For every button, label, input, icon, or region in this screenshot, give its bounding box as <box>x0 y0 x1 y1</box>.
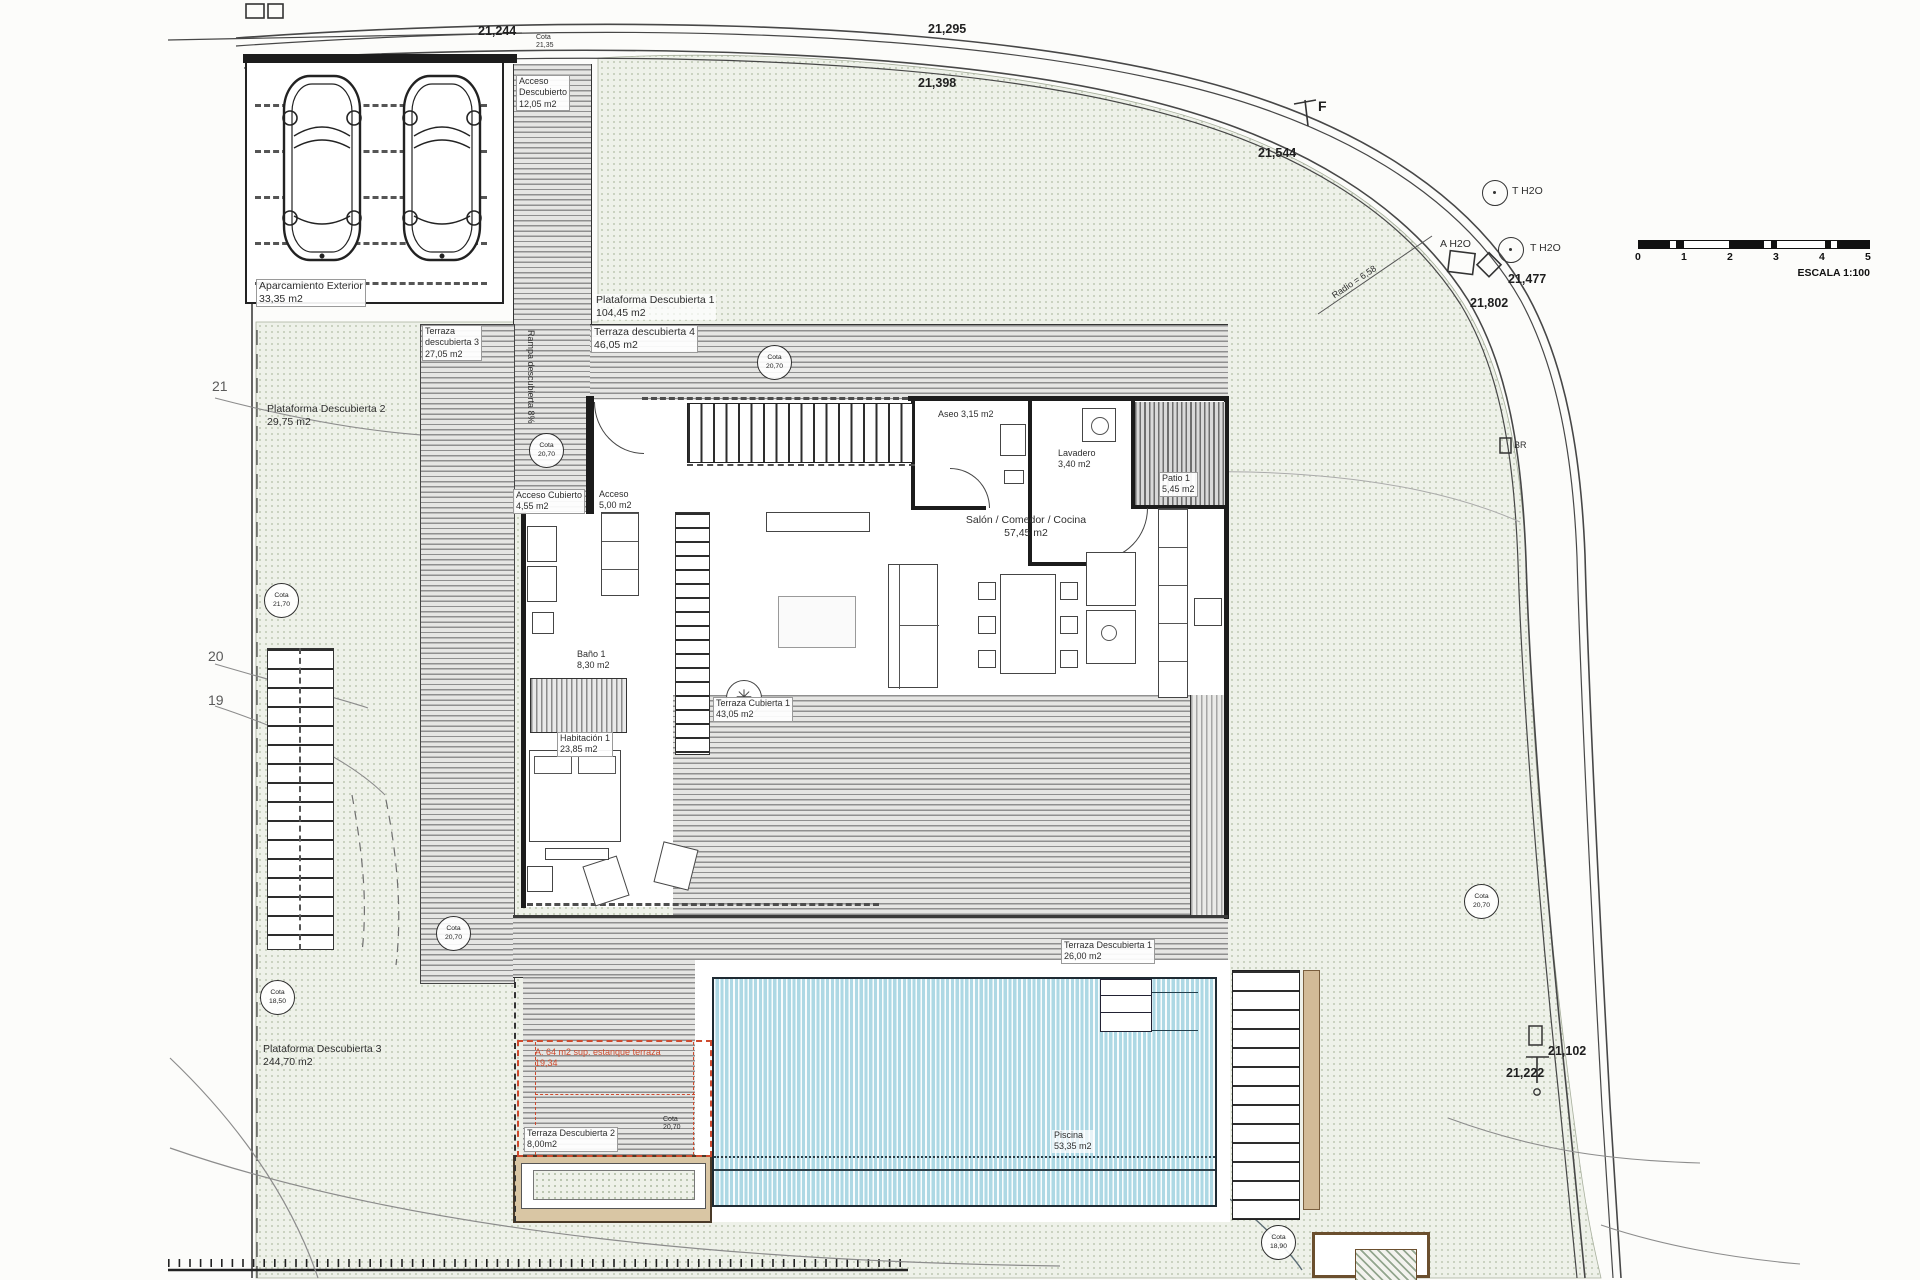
cota-stamp: Cota21,70 <box>264 583 299 618</box>
stairs-edge-dash <box>687 464 915 466</box>
contour-label-19: 19 <box>208 692 224 710</box>
car-icon <box>396 70 488 266</box>
dim-21295: 21,295 <box>928 22 966 36</box>
bed <box>529 750 621 842</box>
kitchen-counter <box>1158 508 1188 698</box>
interior-stairs <box>687 403 913 463</box>
deck-edge-line <box>513 915 1228 918</box>
dim-21102: 21,102 <box>1548 1044 1586 1058</box>
scale-bar: 0 1 2 3 4 5 ESCALA 1:100 <box>1638 240 1870 279</box>
dim-21544: 21,544 <box>1258 146 1296 160</box>
wardrobe <box>530 678 627 733</box>
pool-edge-line <box>714 1169 1215 1171</box>
entry-wall-stub <box>586 396 594 514</box>
label-terraza-4: Terraza descubierta 446,05 m2 <box>592 326 697 352</box>
label-aseo: Aseo 3,15 m2 <box>938 409 994 420</box>
dining-chair <box>978 616 996 634</box>
label-plataforma-1: Plataforma Descubierta 1104,45 m2 <box>594 294 716 320</box>
dining-chair <box>978 650 996 668</box>
scale-label: ESCALA 1:100 <box>1638 267 1870 279</box>
entry-closet <box>601 512 639 596</box>
label-terraza-cubierta-1: Terraza Cubierta 143,05 m2 <box>714 698 792 721</box>
kitchen-island <box>1086 610 1136 664</box>
label-acceso-descubierto: AccesoDescubierto12,05 m2 <box>517 76 569 110</box>
scale-tick: 2 <box>1727 251 1733 263</box>
label-t-h2o-2: T H2O <box>1530 242 1561 255</box>
scale-tick: 0 <box>1635 251 1641 263</box>
car-icon <box>276 70 368 266</box>
dim-21802: 21,802 <box>1470 296 1508 310</box>
cota-stamp: Cota20,70 <box>436 916 471 951</box>
rug <box>778 596 856 648</box>
south-deck-terraza-cubierta <box>673 695 1228 917</box>
pool-step-line <box>1152 1030 1198 1031</box>
contour-label-21: 21 <box>212 378 228 396</box>
cota-stamp: Cota18,90 <box>1261 1225 1296 1260</box>
label-br: BR <box>1514 440 1527 451</box>
label-patio-1: Patio 15,45 m2 <box>1160 473 1197 496</box>
south-glass-wall <box>527 903 879 906</box>
cota-stamp: Cota18,50 <box>260 980 295 1015</box>
cota-stamp: Cota20,70 <box>529 433 564 468</box>
scale-tick: 5 <box>1865 251 1871 263</box>
north-wall <box>908 396 1228 401</box>
label-aparcamiento: Aparcamiento Exterior33,35 m2 <box>257 280 365 306</box>
contour-label-20: 20 <box>208 648 224 666</box>
dining-table <box>1000 574 1056 674</box>
label-lavadero: Lavadero3,40 m2 <box>1058 448 1096 471</box>
scale-tick: 3 <box>1773 251 1779 263</box>
aseo-east-wall <box>1028 398 1032 566</box>
shelving-ladder <box>675 512 710 755</box>
bath-cabinet <box>527 526 557 562</box>
west-walkway-terraza <box>420 324 515 984</box>
tan-retaining-wall <box>1303 970 1320 1210</box>
tan-corner-box <box>1312 1232 1430 1278</box>
site-plan: Cota20,70 Cota20,70 Cota21,70 Cota20,70 … <box>0 0 1920 1280</box>
label-rampa: Rampa descubierta 8% <box>525 330 536 424</box>
road-f-mark: F <box>1318 98 1327 114</box>
dim-21398: 21,398 <box>918 76 956 90</box>
dining-chair <box>1060 650 1078 668</box>
t-h2o-symbol <box>1482 180 1508 206</box>
bedroom-west-wall <box>521 512 526 908</box>
label-red-annotation: A: 64 m2 sup. estanque terraza19,34 <box>535 1047 661 1070</box>
dining-chair <box>1060 616 1078 634</box>
pool-overflow-dotted-line <box>714 1156 1215 1158</box>
label-plataforma-2: Plataforma Descubierta 229,75 m2 <box>267 403 385 429</box>
garden-stairs-west-rail <box>299 648 301 950</box>
toilet <box>1000 424 1026 456</box>
cota-stamp: Cota20,70 <box>757 345 792 380</box>
garden-stairs-east <box>1232 970 1300 1220</box>
label-t-h2o-1: T H2O <box>1512 185 1543 198</box>
label-piscina: Piscina53,35 m2 <box>1052 1130 1094 1153</box>
label-cota-small-terrace2: Cota20,70 <box>663 1116 681 1132</box>
street-retaining-wall <box>243 54 517 63</box>
planter-box <box>513 1155 712 1223</box>
label-terraza-descubierta-2: Terraza Descubierta 28,00m2 <box>525 1128 617 1151</box>
sofa <box>888 564 938 688</box>
dining-chair <box>978 582 996 600</box>
t-h2o-symbol <box>1498 237 1524 263</box>
cota-stamp: Cota20,70 <box>1464 884 1499 919</box>
label-terraza-3: Terrazadescubierta 327,05 m2 <box>423 326 481 360</box>
scale-tick: 1 <box>1681 251 1687 263</box>
bed-bench <box>545 848 609 860</box>
label-cota-small-top: Cota21,35 <box>536 34 554 50</box>
label-a-h2o: A H2O <box>1440 238 1471 251</box>
bath-fixture <box>532 612 554 634</box>
label-bano-1: Baño 18,30 m2 <box>577 649 610 672</box>
dim-21244: 21,244 <box>478 24 516 38</box>
dining-chair <box>1060 582 1078 600</box>
label-plataforma-3: Plataforma Descubierta 3244,70 m2 <box>263 1043 381 1069</box>
label-acceso: Acceso5,00 m2 <box>599 489 632 512</box>
label-habitacion-1: Habitación 123,85 m2 <box>558 733 612 756</box>
sink <box>1004 470 1024 484</box>
side-table <box>527 866 553 892</box>
pool-steps <box>1100 979 1152 1032</box>
tv-bench <box>766 512 870 532</box>
pool-step-line <box>1152 992 1198 993</box>
label-acceso-cubierto: Acceso Cubierto4,55 m2 <box>514 490 584 513</box>
dim-21477: 21,477 <box>1508 272 1546 286</box>
dim-21222: 21,222 <box>1506 1066 1544 1080</box>
label-salon: Salón / Comedor / Cocina57,45 m2 <box>938 514 1114 540</box>
scale-tick: 4 <box>1819 251 1825 263</box>
label-terraza-descubierta-1: Terraza Descubierta 126,00 m2 <box>1062 940 1154 963</box>
washing-machine <box>1082 408 1116 442</box>
plot-dashed-edge <box>514 982 516 1222</box>
kitchen-island <box>1086 552 1136 606</box>
bath-cabinet <box>527 566 557 602</box>
cabinet <box>1194 598 1222 626</box>
north-glass-wall <box>642 397 908 400</box>
